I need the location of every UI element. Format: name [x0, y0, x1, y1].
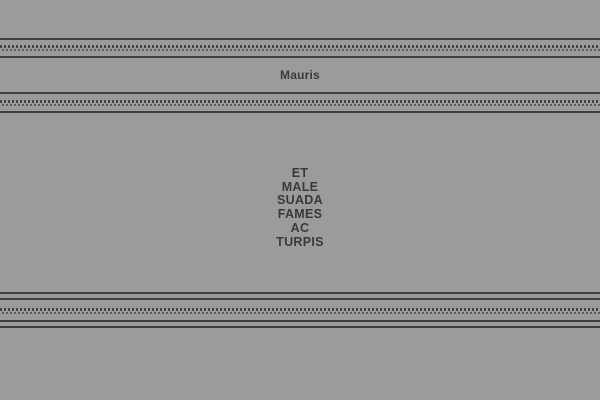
page-title: Mauris — [0, 58, 600, 92]
divider-dotted-row — [0, 45, 600, 48]
content-line: AC — [0, 222, 600, 236]
divider-rule — [0, 292, 600, 294]
divider-dotted-row — [0, 308, 600, 311]
content-line: FAMES — [0, 208, 600, 222]
divider-rule — [0, 111, 600, 113]
divider-dotted-row — [0, 104, 600, 106]
divider-rule — [0, 320, 600, 322]
divider-rule — [0, 38, 600, 40]
divider-rule — [0, 326, 600, 328]
header-bottom-divider — [0, 92, 600, 113]
content-line: TURPIS — [0, 236, 600, 250]
divider-dotted-row — [0, 312, 600, 314]
divider-rule — [0, 298, 600, 300]
content-line: MALE — [0, 181, 600, 195]
content-line: SUADA — [0, 194, 600, 208]
content-text-block: ET MALE SUADA FAMES AC TURPIS — [0, 167, 600, 249]
top-divider — [0, 38, 600, 58]
divider-dotted-row — [0, 49, 600, 51]
divider-rule — [0, 92, 600, 94]
content-line: ET — [0, 167, 600, 181]
divider-dotted-row — [0, 100, 600, 103]
footer-divider — [0, 292, 600, 328]
page: { "header": { "title": "Mauris" }, "cont… — [0, 0, 600, 400]
